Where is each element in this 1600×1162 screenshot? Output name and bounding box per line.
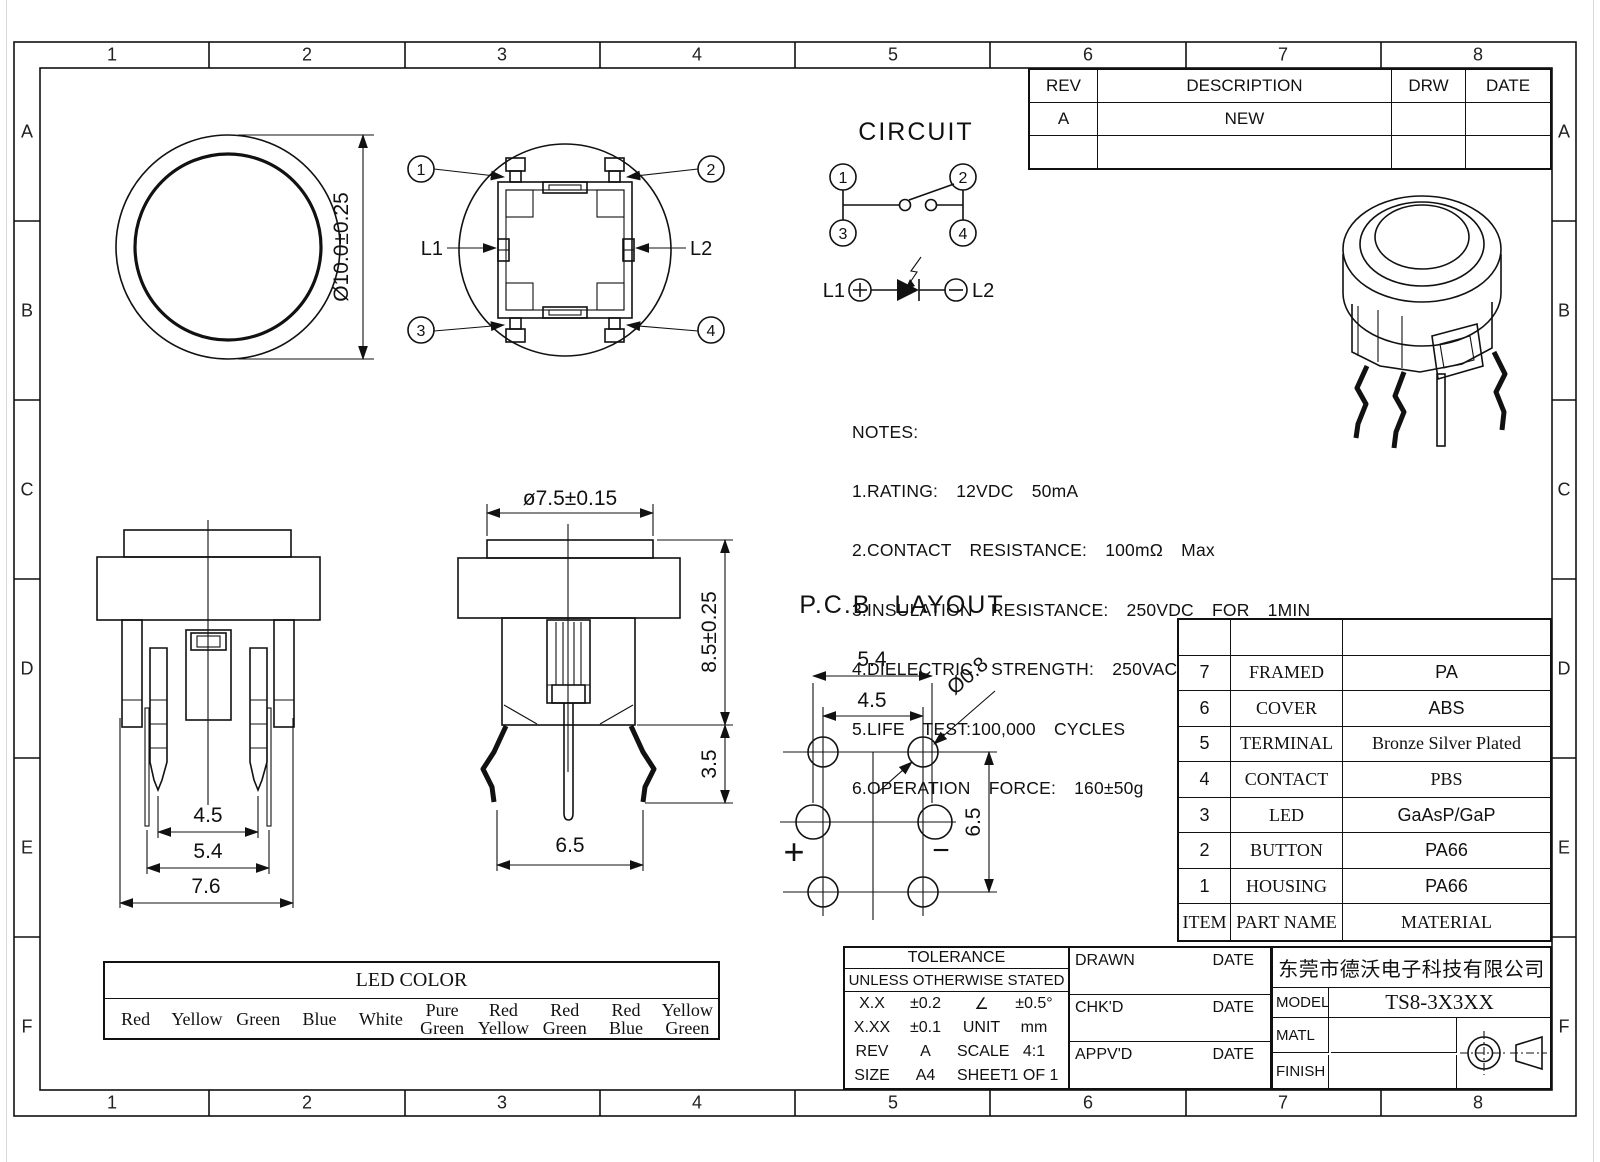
side-view: ø7.5±0.15 8.5±0.25 3.5 6.5 (458, 487, 733, 871)
tol-cell: X.XX (845, 1019, 894, 1037)
first-angle-projection-icon (1458, 1018, 1549, 1088)
rev-cell-empty (1466, 136, 1550, 168)
appvd-label: APPV'D (1075, 1046, 1132, 1064)
zone-row-left-a: A (21, 122, 33, 143)
tol-cell: X.X (845, 995, 894, 1013)
tol-cell: mm (1006, 1019, 1068, 1037)
parts-name: COVER (1231, 691, 1343, 727)
signoff-appvd-row: APPV'D DATE (1070, 1042, 1270, 1089)
circuit-pin2: 2 (959, 170, 968, 187)
circuit-title: CIRCUIT (858, 118, 973, 146)
pcb-plus-mark: + (783, 831, 804, 872)
bottom-view-pin4: 4 (707, 323, 716, 340)
parts-name: CONTACT (1231, 762, 1343, 798)
led-color-table: LED COLOR Red Yellow Green Blue White Pu… (103, 961, 720, 1040)
led-color: Red (105, 1010, 166, 1028)
tol-cell: 4:1 (1006, 1043, 1068, 1061)
zone-row-left-f: F (22, 1017, 33, 1038)
tol-cell: ±0.2 (894, 995, 957, 1013)
zone-row-right-d: D (1558, 659, 1571, 680)
tol-cell: ±0.1 (894, 1019, 957, 1037)
led-color: Red Blue (595, 1001, 656, 1037)
tol-cell: UNIT (957, 1019, 1006, 1037)
front-view: 4.5 5.4 7.6 (97, 520, 320, 908)
parts-header-name: PART NAME (1231, 904, 1343, 940)
rev-cell-empty (1030, 136, 1098, 168)
zone-col-bottom-4: 4 (692, 1093, 702, 1114)
rev-cell-description: NEW (1098, 103, 1392, 136)
rev-header-rev: REV (1030, 70, 1098, 103)
tol-cell: SHEET (957, 1067, 1006, 1085)
rev-cell-drw (1392, 103, 1466, 136)
date-label: DATE (1213, 952, 1254, 970)
parts-material: PA66 (1343, 833, 1550, 869)
rev-header-date: DATE (1466, 70, 1550, 103)
led-color: Red Yellow (473, 1001, 534, 1037)
revision-table: REV DESCRIPTION DRW DATE A NEW (1028, 68, 1552, 170)
zone-col-top-7: 7 (1278, 45, 1288, 66)
led-color: White (350, 1010, 411, 1028)
rev-cell-empty (1098, 136, 1392, 168)
rev-cell-empty (1392, 136, 1466, 168)
rev-header-drw: DRW (1392, 70, 1466, 103)
notes-title: NOTES: (852, 423, 1372, 443)
parts-header-item: ITEM (1179, 904, 1231, 940)
dim-bezel-diameter: Ø10.0±0.25 (330, 192, 353, 302)
zone-row-right-f: F (1559, 1017, 1570, 1038)
dim-side-height: 8.5±0.25 (698, 591, 721, 673)
circuit-pin1: 1 (839, 170, 848, 187)
parts-item: 5 (1179, 727, 1231, 763)
bottom-view: 1 2 3 4 L1 L2 (408, 144, 724, 356)
bottom-view-l1-label: L1 (421, 238, 443, 260)
led-color-row: Red Yellow Green Blue White Pure Green R… (105, 999, 718, 1038)
tol-cell: SCALE (957, 1043, 1006, 1061)
parts-name: HOUSING (1231, 869, 1343, 905)
signoff-drawn-row: DRAWN DATE (1070, 948, 1270, 995)
zone-col-top-1: 1 (107, 45, 117, 66)
led-color-title: LED COLOR (105, 963, 718, 999)
zone-col-bottom-1: 1 (107, 1093, 117, 1114)
dim-front-inner: 4.5 (193, 804, 222, 827)
circuit-pin4: 4 (959, 226, 968, 243)
parts-cell-empty (1231, 620, 1343, 656)
zone-col-bottom-3: 3 (497, 1093, 507, 1114)
rev-cell-rev: A (1030, 103, 1098, 136)
parts-item: 2 (1179, 833, 1231, 869)
bottom-view-l2-label: L2 (690, 238, 712, 260)
tolerance-block: TOLERANCE UNLESS OTHERWISE STATED X.X ±0… (843, 946, 1070, 1090)
drawn-label: DRAWN (1075, 952, 1135, 970)
rev-cell-date (1466, 103, 1550, 136)
parts-name: BUTTON (1231, 833, 1343, 869)
led-color: Green (228, 1010, 289, 1028)
circuit-l2-label: L2 (972, 280, 994, 302)
led-color: Pure Green (411, 1001, 472, 1037)
tolerance-subtitle: UNLESS OTHERWISE STATED (845, 969, 1068, 992)
matl-finish-area: MATL FINISH (1273, 1018, 1550, 1088)
zone-col-bottom-6: 6 (1083, 1093, 1093, 1114)
zone-row-right-e: E (1558, 838, 1570, 859)
tolerance-title: TOLERANCE (845, 948, 1068, 969)
parts-cell-empty (1343, 620, 1550, 656)
tol-cell: A (894, 1043, 957, 1061)
tol-cell: A4 (894, 1067, 957, 1085)
tol-cell: REV (845, 1043, 894, 1061)
title-block: 东莞市德沃电子科技有限公司 MODEL TS8-3X3XX MATL FINIS… (1272, 946, 1552, 1090)
rev-header-description: DESCRIPTION (1098, 70, 1392, 103)
dim-side-button: ø7.5±0.15 (523, 487, 617, 510)
zone-col-top-8: 8 (1473, 45, 1483, 66)
date-label: DATE (1213, 1046, 1254, 1064)
tolerance-grid: X.X ±0.2 ∠ ±0.5° X.XX ±0.1 UNIT mm REV A… (845, 992, 1068, 1088)
projection-symbol-cell (1458, 1018, 1549, 1088)
pcb-minus-mark: − (932, 834, 950, 867)
led-color: Yellow Green (657, 1001, 718, 1037)
note-line: 2.CONTACT RESISTANCE: 100mΩ Max (852, 541, 1372, 561)
parts-item: 3 (1179, 798, 1231, 834)
parts-name: FRAMED (1231, 656, 1343, 692)
parts-material: ABS (1343, 691, 1550, 727)
chkd-label: CHK'D (1075, 999, 1123, 1017)
zone-row-left-d: D (21, 659, 34, 680)
parts-item: 4 (1179, 762, 1231, 798)
tol-cell: SIZE (845, 1067, 894, 1085)
dim-side-lead: 3.5 (698, 749, 721, 778)
led-color: Blue (289, 1010, 350, 1028)
zone-col-bottom-2: 2 (302, 1093, 312, 1114)
zone-row-left-c: C (21, 480, 34, 501)
led-color: Red Green (534, 1001, 595, 1037)
parts-material: Bronze Silver Plated (1343, 727, 1550, 763)
model-row: MODEL TS8-3X3XX (1273, 988, 1550, 1018)
circuit-l1-label: L1 (823, 280, 845, 302)
zone-row-left-e: E (21, 838, 33, 859)
parts-item: 1 (1179, 869, 1231, 905)
bottom-view-pin1: 1 (417, 162, 426, 179)
parts-cell-empty (1179, 620, 1231, 656)
zone-col-top-5: 5 (888, 45, 898, 66)
dim-front-outer: 7.6 (191, 875, 220, 898)
company-name: 东莞市德沃电子科技有限公司 (1273, 948, 1550, 988)
top-view: Ø10.0±0.25 (116, 135, 374, 359)
parts-name: TERMINAL (1231, 727, 1343, 763)
parts-material: PA66 (1343, 869, 1550, 905)
parts-material: GaAsP/GaP (1343, 798, 1550, 834)
parts-name: LED (1231, 798, 1343, 834)
zone-row-right-a: A (1558, 122, 1570, 143)
zone-col-bottom-5: 5 (888, 1093, 898, 1114)
parts-table: 7 FRAMED PA 6 COVER ABS 5 TERMINAL Bronz… (1177, 618, 1552, 942)
parts-item: 7 (1179, 656, 1231, 692)
circuit-pin3: 3 (839, 226, 848, 243)
bottom-view-pin3: 3 (417, 323, 426, 340)
led-color: Yellow (166, 1010, 227, 1028)
parts-material: PBS (1343, 762, 1550, 798)
matl-value (1331, 1018, 1457, 1053)
dim-side-body: 6.5 (555, 834, 584, 857)
date-label: DATE (1213, 999, 1254, 1017)
zone-col-top-3: 3 (497, 45, 507, 66)
note-line: 1.RATING: 12VDC 50mA (852, 482, 1372, 502)
parts-header-material: MATERIAL (1343, 904, 1550, 940)
parts-material: PA (1343, 656, 1550, 692)
zone-row-right-c: C (1558, 480, 1571, 501)
model-value: TS8-3X3XX (1329, 988, 1550, 1017)
zone-col-bottom-7: 7 (1278, 1093, 1288, 1114)
drawing-sheet: Ø10.0±0.25 (0, 0, 1600, 1162)
signoff-chkd-row: CHK'D DATE (1070, 995, 1270, 1042)
tol-cell: 1 OF 1 (1006, 1067, 1068, 1085)
circuit-schematic: CIRCUIT 1 2 3 4 L1 L2 (823, 118, 995, 302)
signoff-block: DRAWN DATE CHK'D DATE APPV'D DATE (1070, 946, 1272, 1090)
zone-col-top-2: 2 (302, 45, 312, 66)
bottom-view-pin2: 2 (707, 162, 716, 179)
zone-col-top-6: 6 (1083, 45, 1093, 66)
zone-col-bottom-8: 8 (1473, 1093, 1483, 1114)
parts-item: 6 (1179, 691, 1231, 727)
model-label: MODEL (1273, 988, 1329, 1017)
finish-label: FINISH (1273, 1055, 1329, 1089)
zone-col-top-4: 4 (692, 45, 702, 66)
angle-tolerance-icon: ∠ (957, 994, 1006, 1014)
matl-label: MATL (1273, 1018, 1329, 1053)
dim-front-mid: 5.4 (193, 840, 223, 863)
finish-value (1331, 1055, 1457, 1089)
zone-row-right-b: B (1558, 301, 1570, 322)
tol-cell: ±0.5° (1006, 995, 1068, 1013)
zone-row-left-b: B (21, 301, 33, 322)
